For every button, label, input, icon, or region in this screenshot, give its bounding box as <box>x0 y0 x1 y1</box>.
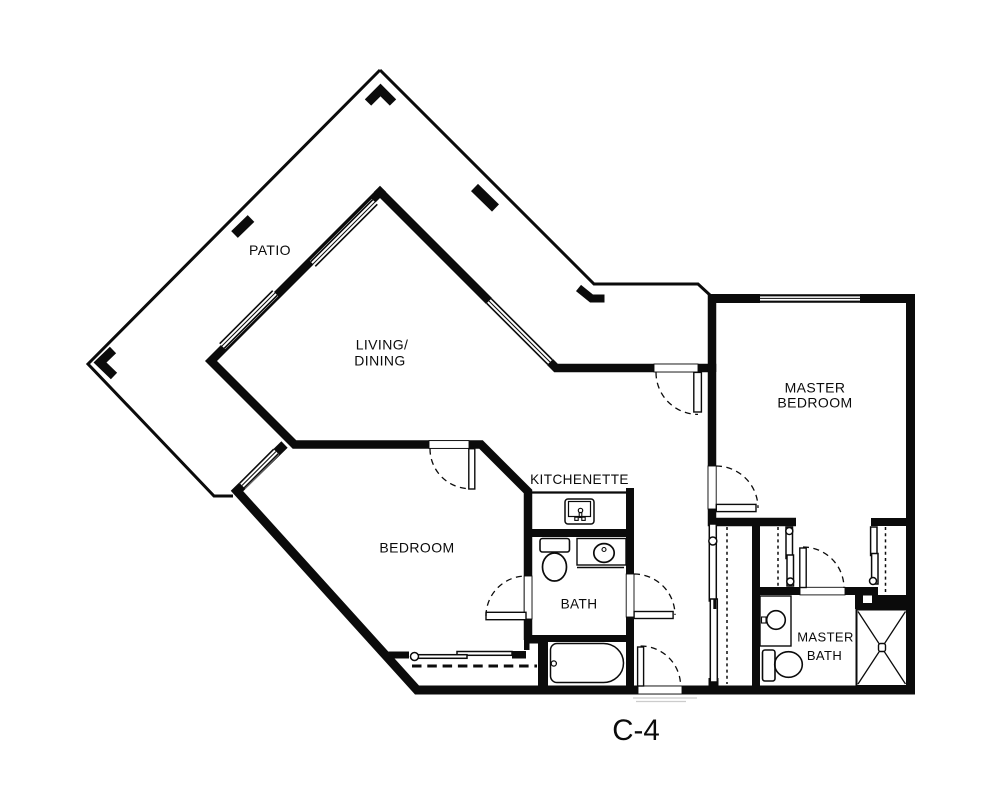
svg-text:DINING: DINING <box>354 353 405 369</box>
svg-text:BEDROOM: BEDROOM <box>379 540 454 556</box>
svg-text:C-4: C-4 <box>612 714 660 747</box>
svg-text:MASTER: MASTER <box>797 630 854 645</box>
svg-text:PATIO: PATIO <box>249 242 291 258</box>
svg-text:KITCHENETTE: KITCHENETTE <box>530 472 629 487</box>
svg-text:MASTER: MASTER <box>785 380 846 396</box>
svg-text:LIVING/: LIVING/ <box>356 337 409 353</box>
svg-text:BATH: BATH <box>561 597 598 612</box>
svg-text:BATH: BATH <box>807 648 842 663</box>
svg-text:BEDROOM: BEDROOM <box>777 395 852 411</box>
